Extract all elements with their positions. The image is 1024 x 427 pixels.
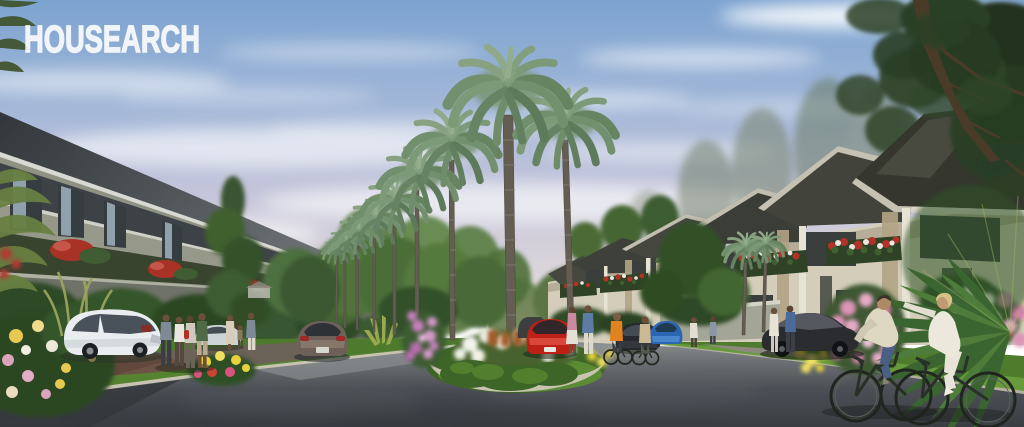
svg-text:HOUSEARCH: HOUSEARCH (24, 19, 200, 61)
